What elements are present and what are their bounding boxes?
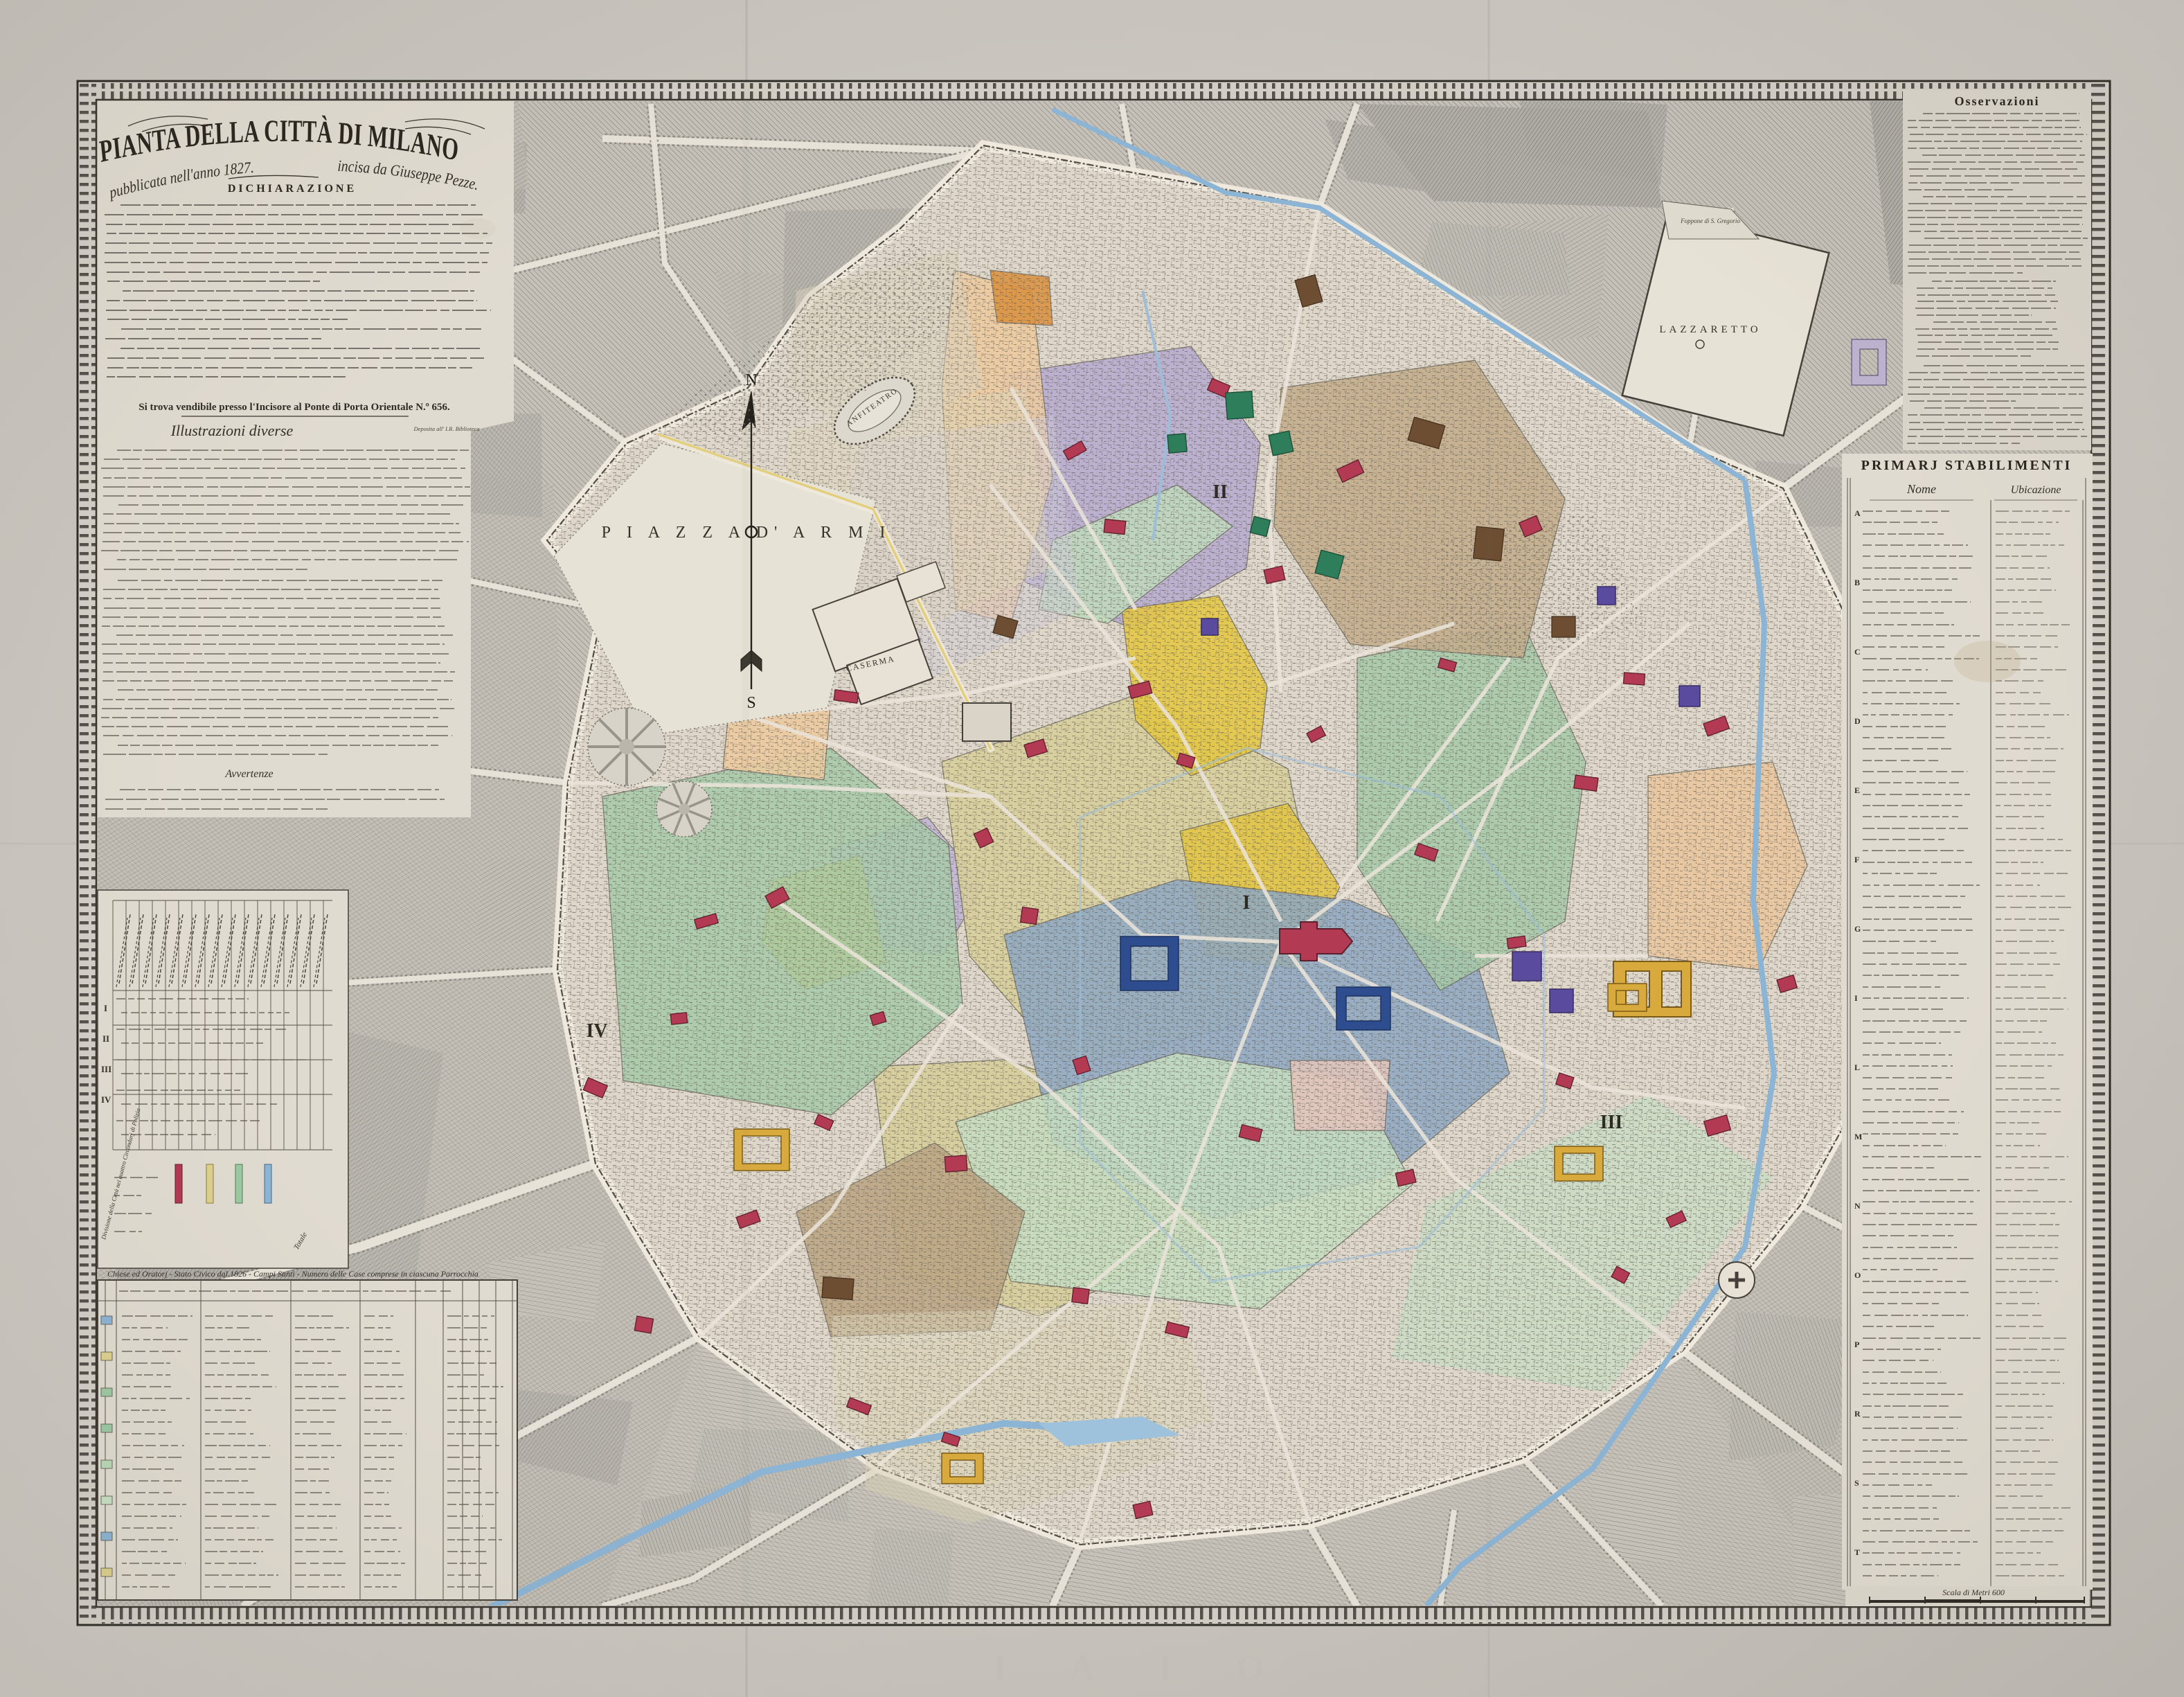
svg-text:I A I O: I A I O [993, 1649, 1292, 1688]
